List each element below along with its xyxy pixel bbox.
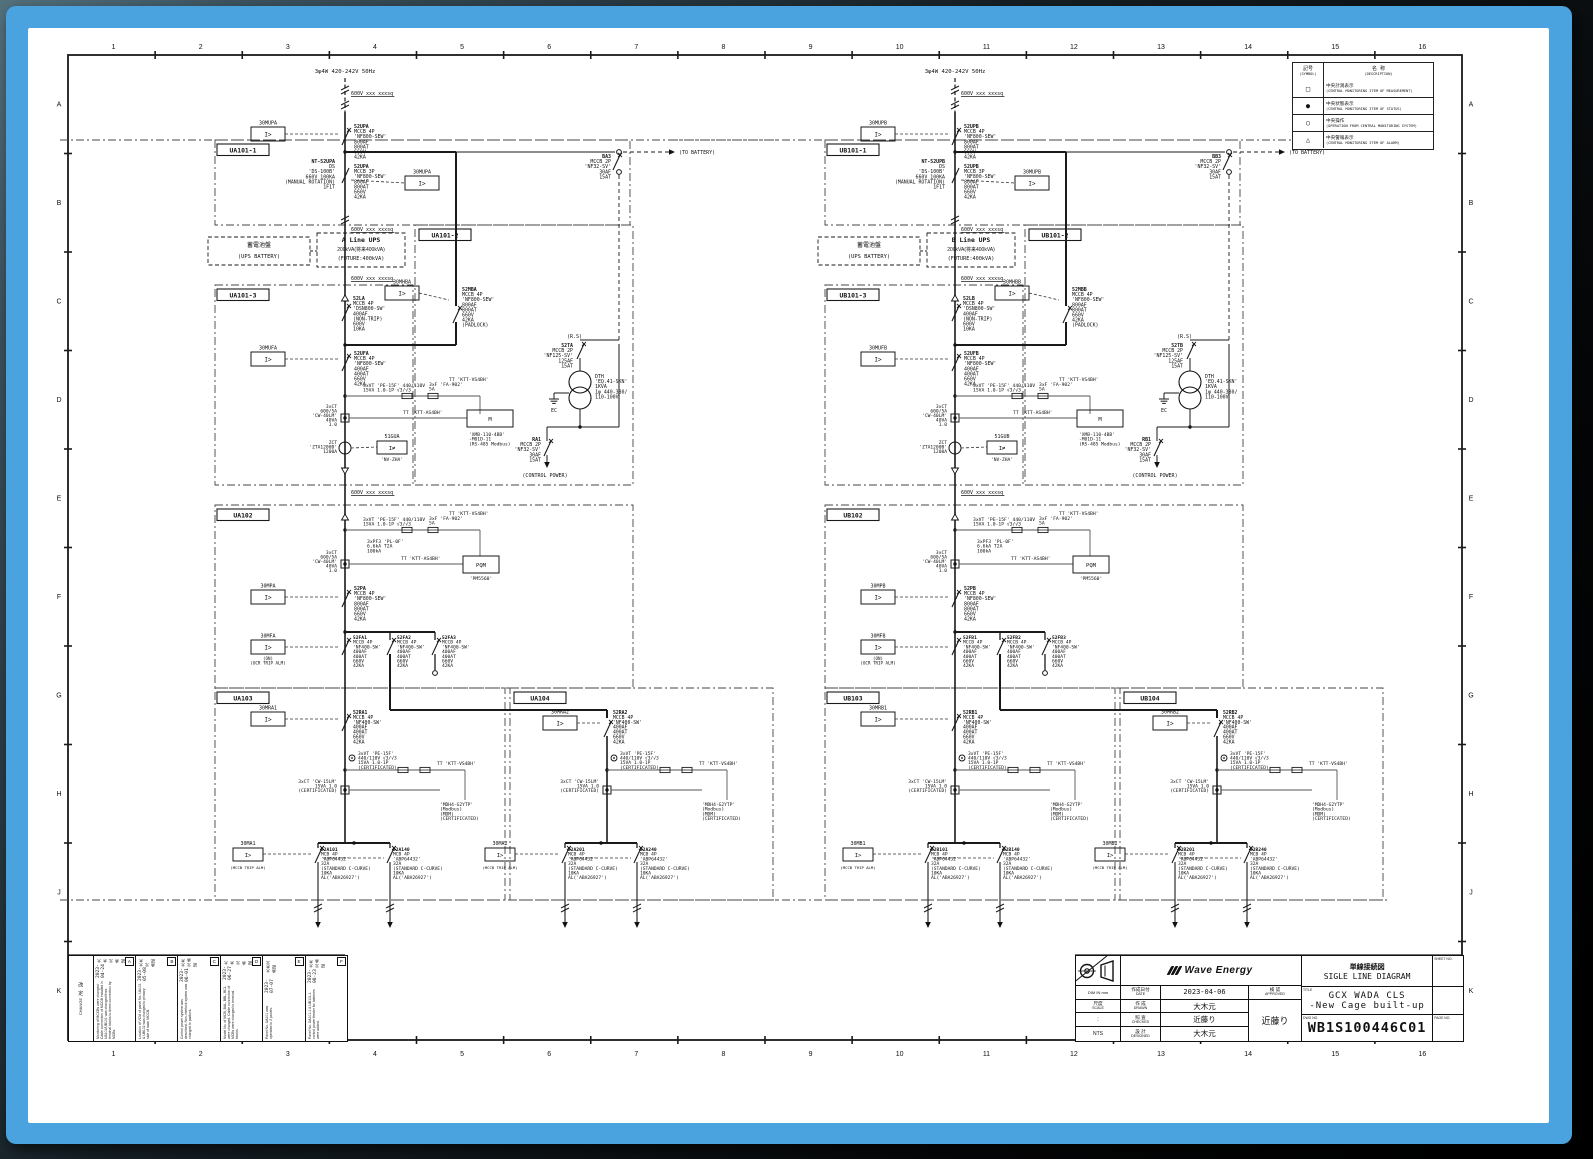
sheet-no-value-cell bbox=[1433, 987, 1464, 1014]
revision-item-F: FPanel No. UA101-1 & UB101-1 control pow… bbox=[306, 956, 347, 1041]
svg-text:6: 6 bbox=[547, 44, 551, 51]
svg-text:UB101-1: UB101-1 bbox=[840, 147, 867, 155]
svg-text:30MRA1: 30MRA1 bbox=[259, 706, 277, 712]
legend-description: 中央警報表示(CENTRAL MONITORING ITEM OF ALARM) bbox=[1324, 132, 1433, 148]
svg-text:I>: I> bbox=[874, 357, 882, 364]
svg-text:I>: I> bbox=[264, 132, 272, 139]
svg-text:I>: I> bbox=[855, 853, 862, 859]
svg-text:UA104: UA104 bbox=[530, 695, 549, 703]
designed-value: 大木元 bbox=[1193, 1028, 1216, 1039]
svg-text:1.0: 1.0 bbox=[939, 568, 948, 574]
legend-description: 中央状態表示(CENTRAL MONITORING ITEM OF STATUS… bbox=[1324, 98, 1433, 114]
svg-text:1200A: 1200A bbox=[323, 449, 337, 455]
svg-text:UB103: UB103 bbox=[843, 695, 862, 703]
svg-text:42KA: 42KA bbox=[964, 155, 976, 161]
svg-text:10KA: 10KA bbox=[353, 327, 365, 333]
drawn-label: 作 成DRAWN bbox=[1134, 1002, 1147, 1010]
svg-text:EC: EC bbox=[1161, 408, 1167, 414]
svg-text:600V xxx xxxsq: 600V xxx xxxsq bbox=[351, 91, 393, 97]
svg-text:'NV-ZHA': 'NV-ZHA' bbox=[381, 457, 403, 463]
svg-text:42KA: 42KA bbox=[442, 663, 453, 669]
svg-text:12: 12 bbox=[1070, 44, 1078, 51]
svg-text:H: H bbox=[56, 791, 61, 798]
revision-tag: B bbox=[167, 957, 176, 966]
wave-logo-icon bbox=[1169, 966, 1180, 975]
svg-text:11: 11 bbox=[983, 44, 990, 51]
doc-type-en: SIGLE LINE DIAGRAM bbox=[1324, 972, 1411, 981]
revision-tag: E bbox=[295, 957, 304, 966]
svg-text:PQM: PQM bbox=[1086, 563, 1097, 569]
svg-text:30MB2: 30MB2 bbox=[1102, 841, 1117, 847]
title-block-right: 単線接続図 SIGLE LINE DIAGRAM SHEET NO. TITLE… bbox=[1302, 956, 1464, 1041]
svg-text:(PADLOCK): (PADLOCK) bbox=[1072, 323, 1099, 329]
svg-text:3φ4W 420-242V 50Hz: 3φ4W 420-242V 50Hz bbox=[315, 69, 376, 75]
svg-text:I>: I> bbox=[1166, 721, 1174, 728]
svg-text:1F1T: 1F1T bbox=[933, 185, 945, 191]
svg-text:30MUPA: 30MUPA bbox=[259, 121, 277, 127]
legend-header-row: 記号 (SYMBOL) 名 称 (DESCRIPTION) bbox=[1293, 63, 1433, 80]
page-no-cell: PAGE NO. bbox=[1433, 1015, 1464, 1041]
svg-text:TT 'KTT-AS4BH': TT 'KTT-AS4BH' bbox=[401, 556, 441, 562]
svg-text:42KA: 42KA bbox=[354, 617, 366, 623]
svg-text:1200A: 1200A bbox=[933, 449, 947, 455]
svg-text:42KA: 42KA bbox=[963, 663, 974, 669]
legend-row-1: ●中央状態表示(CENTRAL MONITORING ITEM OF STATU… bbox=[1293, 97, 1433, 114]
svg-text:I>: I> bbox=[556, 721, 564, 728]
doc-type-jp: 単線接続図 bbox=[1350, 962, 1385, 972]
svg-text:110-100V: 110-100V bbox=[1205, 394, 1229, 400]
svg-text:15AT: 15AT bbox=[599, 174, 611, 180]
svg-text:TT 'KTT-VS4BH': TT 'KTT-VS4BH' bbox=[699, 761, 738, 767]
svg-text:(MCCB TRIP ALM): (MCCB TRIP ALM) bbox=[230, 865, 265, 870]
svg-text:I>: I> bbox=[1008, 291, 1016, 298]
svg-text:4: 4 bbox=[373, 1051, 377, 1058]
svg-text:15AT: 15AT bbox=[529, 457, 541, 463]
drawing-sheet: 1122334455667788991010111112121313141415… bbox=[28, 28, 1549, 1123]
svg-text:(FUTURE:400kVA): (FUTURE:400kVA) bbox=[948, 256, 995, 262]
drawing-title-line1: GCX WADA CLS bbox=[1329, 991, 1406, 1001]
svg-text:100kA: 100kA bbox=[367, 548, 381, 554]
svg-text:42KA: 42KA bbox=[354, 195, 366, 201]
svg-text:200kVA(将来400kVA): 200kVA(将来400kVA) bbox=[947, 246, 995, 253]
svg-text:UB101-2: UB101-2 bbox=[1042, 232, 1069, 240]
svg-text:42KA: 42KA bbox=[963, 739, 975, 745]
revision-item-D: DModel No. of MCB, BAL, BBL, BCL were ch… bbox=[221, 956, 263, 1041]
svg-text:(CERTIFICATED): (CERTIFICATED) bbox=[560, 788, 599, 794]
svg-text:16: 16 bbox=[1418, 1051, 1426, 1058]
svg-text:TT 'KTT-VS4BH': TT 'KTT-VS4BH' bbox=[449, 511, 489, 517]
revision-item-B: BLocation of VCM of panel No. UA101 & UB… bbox=[136, 956, 178, 1041]
revision-body: Location of VCM of panel No. UA101 & UB1… bbox=[137, 957, 176, 1040]
svg-text:I>: I> bbox=[245, 853, 252, 859]
drawing-title-cell: TITLE GCX WADA CLS -New Cage built-up bbox=[1302, 987, 1433, 1014]
svg-text:30MUFA: 30MUFA bbox=[259, 346, 277, 352]
legend-description: 中央計測表示(CENTRAL MONITORING ITEM OF MEASUR… bbox=[1324, 80, 1433, 97]
svg-text:AL('ABA26927'): AL('ABA26927') bbox=[640, 875, 679, 881]
svg-text:H: H bbox=[1468, 791, 1473, 798]
svg-text:I≠: I≠ bbox=[389, 446, 396, 452]
svg-text:15AT: 15AT bbox=[1139, 457, 1151, 463]
svg-text:1.0: 1.0 bbox=[329, 568, 338, 574]
svg-text:30MRB2: 30MRB2 bbox=[1161, 710, 1179, 716]
svg-text:TT 'KTT-VS4BH': TT 'KTT-VS4BH' bbox=[1059, 511, 1099, 517]
revision-body: Model No. of MCB, BAL, BBL, BCL were cha… bbox=[222, 957, 261, 1040]
company-logo-text: Wave Energy bbox=[1184, 965, 1252, 976]
svg-text:30MUPB: 30MUPB bbox=[1023, 170, 1041, 176]
svg-text:I>: I> bbox=[1028, 181, 1036, 188]
svg-text:TT 'KTT-VS4BH': TT 'KTT-VS4BH' bbox=[449, 377, 489, 383]
svg-text:9: 9 bbox=[809, 44, 813, 51]
svg-text:15VA 1.0-1P √3/√3: 15VA 1.0-1P √3/√3 bbox=[363, 388, 411, 394]
svg-text:5: 5 bbox=[460, 1051, 464, 1058]
svg-text:2: 2 bbox=[199, 1051, 203, 1058]
legend-description: 中央操作(OPERATION FROM CENTRAL MONITORING S… bbox=[1324, 115, 1433, 131]
legend-symbol: ○ bbox=[1293, 115, 1324, 131]
revision-tag: D bbox=[252, 957, 261, 966]
svg-text:(UPS BATTERY): (UPS BATTERY) bbox=[848, 254, 890, 260]
revision-header: 改 定 CHANGE bbox=[69, 956, 94, 1041]
svg-text:42KA: 42KA bbox=[1007, 663, 1018, 669]
svg-text:30MRB1: 30MRB1 bbox=[869, 706, 887, 712]
svg-text:蓄電池盤: 蓄電池盤 bbox=[857, 241, 881, 249]
approved-value: 近藤り bbox=[1261, 1014, 1288, 1027]
svg-text:13: 13 bbox=[1157, 44, 1165, 51]
svg-text:4: 4 bbox=[373, 44, 377, 51]
third-angle-projection-icon bbox=[1076, 956, 1121, 986]
svg-text:B: B bbox=[57, 200, 62, 207]
svg-text:14: 14 bbox=[1244, 44, 1252, 51]
svg-text:(OCR TRIP ALM): (OCR TRIP ALM) bbox=[250, 661, 285, 666]
svg-text:15VA 1.0-1P √3/√3: 15VA 1.0-1P √3/√3 bbox=[973, 388, 1021, 394]
svg-text:D: D bbox=[56, 397, 61, 404]
svg-text:I>: I> bbox=[874, 645, 882, 652]
svg-text:9: 9 bbox=[809, 1051, 813, 1058]
screenshot-root: { "grid": { "cols": ["1","2","3","4","5"… bbox=[0, 0, 1593, 1159]
date-value: 2023-04-06 bbox=[1183, 988, 1225, 996]
sheet-frame: 1122334455667788991010111112121313141415… bbox=[56, 44, 1473, 1058]
svg-text:(FUTURE:400kVA): (FUTURE:400kVA) bbox=[338, 256, 385, 262]
revision-item-A: AMonitoring of MCCBs were changed. Cable… bbox=[94, 956, 136, 1041]
svg-text:13: 13 bbox=[1157, 1051, 1165, 1058]
drawing-title-line2: -New Cage built-up bbox=[1309, 1001, 1425, 1011]
svg-text:J: J bbox=[57, 889, 61, 896]
svg-text:30MRA2: 30MRA2 bbox=[551, 710, 569, 716]
dim-label: DIM IN mm bbox=[1088, 990, 1108, 995]
svg-text:(TO BATTERY): (TO BATTERY) bbox=[1289, 150, 1325, 156]
company-logo: Wave Energy bbox=[1121, 956, 1301, 986]
revision-tag: F bbox=[337, 957, 346, 966]
svg-text:UA103: UA103 bbox=[233, 695, 252, 703]
approved-label: 検 認APPROVED bbox=[1265, 988, 1285, 996]
revision-item-E: EPanel No. UA101 was operated to 2 panel… bbox=[263, 956, 305, 1041]
legend-row-3: △中央警報表示(CENTRAL MONITORING ITEM OF ALARM… bbox=[1293, 131, 1433, 148]
legend-symbol: ● bbox=[1293, 98, 1324, 114]
revision-item-C: CControl power system was described. Non… bbox=[178, 956, 220, 1041]
svg-text:I≠: I≠ bbox=[999, 446, 1006, 452]
legend-rows: □中央計測表示(CENTRAL MONITORING ITEM OF MEASU… bbox=[1293, 80, 1433, 148]
svg-text:15VA 1.0-1P √3/√3: 15VA 1.0-1P √3/√3 bbox=[973, 522, 1021, 528]
svg-text:AL('ABA26927'): AL('ABA26927') bbox=[393, 875, 432, 881]
doc-type-cell: 単線接続図 SIGLE LINE DIAGRAM bbox=[1302, 956, 1433, 986]
svg-text:5A: 5A bbox=[1039, 387, 1045, 393]
svg-text:E: E bbox=[57, 495, 62, 502]
circuit-half-A: UA101-1UA101-2UA101-3UA102UA103UA1043φ4W… bbox=[28, 28, 778, 928]
checked-value: 近藤り bbox=[1193, 1014, 1216, 1025]
svg-text:5A: 5A bbox=[1039, 521, 1045, 527]
svg-text:G: G bbox=[56, 692, 61, 699]
revision-body: Monitoring of MCCBs were changed. Cable … bbox=[95, 957, 134, 1040]
svg-text:AL('ABA26927'): AL('ABA26927') bbox=[1003, 875, 1042, 881]
svg-text:(MCCB TRIP ALM): (MCCB TRIP ALM) bbox=[1092, 865, 1127, 870]
svg-text:30MUPA: 30MUPA bbox=[413, 170, 431, 176]
svg-text:42KA: 42KA bbox=[964, 617, 976, 623]
revision-tag: A bbox=[125, 957, 134, 966]
svg-text:30MFB: 30MFB bbox=[870, 634, 885, 640]
svg-text:6: 6 bbox=[547, 1051, 551, 1058]
designed-label: 設 計DESIGNED bbox=[1131, 1030, 1150, 1038]
svg-text:(CERTIFICATED): (CERTIFICATED) bbox=[298, 788, 337, 794]
svg-text:30MA2: 30MA2 bbox=[492, 841, 507, 847]
svg-text:M: M bbox=[488, 417, 492, 423]
svg-text:UB104: UB104 bbox=[1140, 695, 1159, 703]
scale-label: 尺度SCALE bbox=[1092, 1002, 1104, 1010]
svg-text:30MPA: 30MPA bbox=[260, 584, 275, 590]
svg-text:1F1T: 1F1T bbox=[323, 185, 335, 191]
svg-text:42KA: 42KA bbox=[397, 663, 408, 669]
svg-text:7: 7 bbox=[634, 1051, 638, 1058]
svg-text:'NV-ZHA': 'NV-ZHA' bbox=[991, 457, 1013, 463]
svg-text:(R.S): (R.S) bbox=[567, 334, 582, 340]
legend-symbol: □ bbox=[1293, 80, 1324, 97]
svg-text:3: 3 bbox=[286, 44, 290, 51]
svg-text:I>: I> bbox=[398, 291, 406, 298]
svg-text:(TO BATTERY): (TO BATTERY) bbox=[679, 150, 715, 156]
svg-text:'PM5560': 'PM5560' bbox=[1080, 576, 1103, 582]
svg-text:I>: I> bbox=[1107, 853, 1114, 859]
svg-text:30MA1: 30MA1 bbox=[240, 841, 255, 847]
svg-text:51GUB: 51GUB bbox=[994, 434, 1009, 440]
svg-text:AL('ABA26927'): AL('ABA26927') bbox=[321, 875, 360, 881]
svg-text:(OCR TRIP ALM): (OCR TRIP ALM) bbox=[860, 661, 895, 666]
title-block-left: Wave Energy DIM IN mm 作成日付DATE 2023-04-0… bbox=[1076, 956, 1302, 1041]
date-label: 作成日付DATE bbox=[1131, 988, 1149, 996]
svg-text:600V xxx xxxsq: 600V xxx xxxsq bbox=[961, 490, 1003, 496]
svg-text:PQM: PQM bbox=[476, 563, 487, 569]
svg-text:C: C bbox=[1468, 298, 1473, 305]
revision-body: Panel No. UA101 was operated to 2 panels… bbox=[264, 957, 303, 1040]
legend-row-0: □中央計測表示(CENTRAL MONITORING ITEM OF MEASU… bbox=[1293, 80, 1433, 97]
svg-text:15AT: 15AT bbox=[1171, 363, 1183, 369]
svg-text:UA101-2: UA101-2 bbox=[432, 232, 459, 240]
svg-text:TT 'KTT-VS4BH': TT 'KTT-VS4BH' bbox=[1047, 761, 1086, 767]
svg-text:42KA: 42KA bbox=[964, 195, 976, 201]
dwg-no-value: WB1S100446C01 bbox=[1308, 1020, 1427, 1036]
svg-text:I>: I> bbox=[874, 132, 882, 139]
svg-text:(MCCB TRIP ALM): (MCCB TRIP ALM) bbox=[482, 865, 517, 870]
svg-text:TT 'KTT-AS4BH': TT 'KTT-AS4BH' bbox=[1013, 410, 1053, 416]
svg-text:I>: I> bbox=[264, 717, 272, 724]
checked-label: 照 査CHECKED bbox=[1132, 1016, 1150, 1024]
svg-text:12: 12 bbox=[1070, 1051, 1078, 1058]
svg-text:15AT: 15AT bbox=[1209, 174, 1221, 180]
svg-text:15: 15 bbox=[1331, 1051, 1339, 1058]
svg-text:42KA: 42KA bbox=[1223, 739, 1235, 745]
svg-text:AL('ABA26927'): AL('ABA26927') bbox=[1178, 875, 1217, 881]
svg-text:30MB1: 30MB1 bbox=[850, 841, 865, 847]
svg-text:UA101-3: UA101-3 bbox=[230, 292, 257, 300]
svg-text:10KA: 10KA bbox=[963, 327, 975, 333]
revision-tag: C bbox=[210, 957, 219, 966]
svg-text:(RS-485 Modbus): (RS-485 Modbus) bbox=[1079, 441, 1121, 447]
svg-text:(CERTIFICATED): (CERTIFICATED) bbox=[908, 788, 947, 794]
svg-text:UA102: UA102 bbox=[233, 512, 252, 520]
svg-text:(MCCB TRIP ALM): (MCCB TRIP ALM) bbox=[840, 865, 875, 870]
svg-text:TT 'KTT-VS4BH': TT 'KTT-VS4BH' bbox=[1309, 761, 1348, 767]
revision-history-strip: 改 定 CHANGE AMonitoring of MCCBs were cha… bbox=[68, 955, 348, 1042]
svg-text:42KA: 42KA bbox=[354, 155, 366, 161]
legend-row-2: ○中央操作(OPERATION FROM CENTRAL MONITORING … bbox=[1293, 114, 1433, 131]
svg-text:5: 5 bbox=[460, 44, 464, 51]
svg-text:30MHBB: 30MHBB bbox=[1003, 280, 1021, 286]
svg-text:600V xxx xxxsq: 600V xxx xxxsq bbox=[961, 227, 1003, 233]
svg-text:(R.S): (R.S) bbox=[1177, 334, 1192, 340]
svg-text:600V xxx xxxsq: 600V xxx xxxsq bbox=[351, 227, 393, 233]
svg-text:TT 'KTT-AS4BH': TT 'KTT-AS4BH' bbox=[403, 410, 443, 416]
svg-text:F: F bbox=[57, 594, 61, 601]
svg-text:42KA: 42KA bbox=[613, 739, 625, 745]
svg-text:15: 15 bbox=[1331, 44, 1339, 51]
circuit-half-B: UB101-1UB101-2UB101-3UB102UB103UB1043φ4W… bbox=[28, 28, 1388, 928]
svg-text:(CERTIFICATED): (CERTIFICATED) bbox=[1170, 788, 1209, 794]
svg-text:(CONTROL POWER): (CONTROL POWER) bbox=[522, 473, 567, 479]
svg-text:G: G bbox=[1468, 692, 1473, 699]
svg-text:100kA: 100kA bbox=[977, 548, 991, 554]
svg-text:D: D bbox=[1468, 397, 1473, 404]
svg-text:C: C bbox=[56, 298, 61, 305]
svg-text:600V xxx xxxsq: 600V xxx xxxsq bbox=[961, 276, 1003, 282]
svg-text:8: 8 bbox=[721, 44, 725, 51]
svg-text:UB102: UB102 bbox=[843, 512, 862, 520]
svg-text:42KA: 42KA bbox=[353, 663, 364, 669]
svg-text:F: F bbox=[1469, 594, 1473, 601]
svg-text:'PM5560': 'PM5560' bbox=[470, 576, 493, 582]
svg-text:11: 11 bbox=[983, 1051, 990, 1058]
svg-text:AL('ABA26927'): AL('ABA26927') bbox=[1250, 875, 1289, 881]
svg-text:(CERTIFICATED): (CERTIFICATED) bbox=[702, 816, 741, 822]
svg-text:30MFA: 30MFA bbox=[260, 634, 275, 640]
svg-text:30MHBA: 30MHBA bbox=[393, 280, 411, 286]
legend-symbol-header-en: (SYMBOL) bbox=[1299, 72, 1316, 76]
scale-value: NTS bbox=[1093, 1031, 1103, 1037]
revision-body: Control power system was described. Non-… bbox=[179, 957, 218, 1040]
legend-symbol: △ bbox=[1293, 132, 1324, 148]
svg-text:(CONTROL POWER): (CONTROL POWER) bbox=[1132, 473, 1177, 479]
legend-desc-header: 名 称 (DESCRIPTION) bbox=[1324, 63, 1433, 80]
svg-text:(RS-485 Modbus): (RS-485 Modbus) bbox=[469, 441, 511, 447]
svg-text:K: K bbox=[1469, 988, 1474, 995]
svg-text:(CERTIFICATED): (CERTIFICATED) bbox=[440, 816, 479, 822]
svg-text:TT 'KTT-VS4BH': TT 'KTT-VS4BH' bbox=[437, 761, 476, 767]
svg-text:14: 14 bbox=[1244, 1051, 1252, 1058]
legend-desc-header-en: (DESCRIPTION) bbox=[1326, 72, 1431, 76]
svg-text:51GUA: 51GUA bbox=[384, 434, 399, 440]
svg-text:600V xxx xxxsq: 600V xxx xxxsq bbox=[351, 276, 393, 282]
svg-text:42KA: 42KA bbox=[1052, 663, 1063, 669]
svg-text:1: 1 bbox=[112, 44, 116, 51]
svg-text:I>: I> bbox=[264, 645, 272, 652]
svg-text:UA101-1: UA101-1 bbox=[230, 147, 257, 155]
title-block: Wave Energy DIM IN mm 作成日付DATE 2023-04-0… bbox=[1075, 955, 1464, 1042]
svg-text:42KA: 42KA bbox=[353, 739, 365, 745]
svg-text:5A: 5A bbox=[429, 387, 435, 393]
svg-text:E: E bbox=[1469, 495, 1474, 502]
svg-text:(CERTIFICATED): (CERTIFICATED) bbox=[1312, 816, 1351, 822]
svg-text:I>: I> bbox=[874, 717, 882, 724]
svg-text:10: 10 bbox=[896, 1051, 904, 1058]
svg-text:1.0: 1.0 bbox=[939, 422, 948, 428]
svg-text:M: M bbox=[1098, 417, 1102, 423]
svg-text:15VA 1.0-1P √3/√3: 15VA 1.0-1P √3/√3 bbox=[363, 522, 411, 528]
svg-text:I>: I> bbox=[418, 181, 426, 188]
svg-text:3: 3 bbox=[286, 1051, 290, 1058]
svg-text:1.0: 1.0 bbox=[329, 422, 338, 428]
svg-text:TT 'KTT-AS4BH': TT 'KTT-AS4BH' bbox=[1011, 556, 1051, 562]
dwg-no-cell: DWG NO. WB1S100446C01 bbox=[1302, 1015, 1433, 1041]
svg-text:I>: I> bbox=[497, 853, 504, 859]
svg-text:600V xxx xxxsq: 600V xxx xxxsq bbox=[351, 490, 393, 496]
svg-text:1: 1 bbox=[112, 1051, 116, 1058]
svg-text:(PADLOCK): (PADLOCK) bbox=[462, 323, 489, 329]
svg-text:(CERTIFICATED): (CERTIFICATED) bbox=[1050, 816, 1089, 822]
svg-text:30MUFB: 30MUFB bbox=[869, 346, 887, 352]
svg-text:8: 8 bbox=[721, 1051, 725, 1058]
svg-text:30MPB: 30MPB bbox=[870, 584, 885, 590]
svg-text:EC: EC bbox=[551, 408, 557, 414]
svg-text:10: 10 bbox=[896, 44, 904, 51]
svg-text:A Line UPS: A Line UPS bbox=[342, 236, 381, 244]
svg-text:J: J bbox=[1469, 889, 1473, 896]
svg-text:A: A bbox=[1469, 101, 1474, 108]
svg-text:B Line UPS: B Line UPS bbox=[952, 236, 991, 244]
svg-text:UB101-3: UB101-3 bbox=[840, 292, 867, 300]
legend-symbol-header: 記号 (SYMBOL) bbox=[1293, 63, 1324, 80]
svg-text:7: 7 bbox=[634, 44, 638, 51]
svg-text:15AT: 15AT bbox=[561, 363, 573, 369]
svg-text:5A: 5A bbox=[429, 521, 435, 527]
svg-text:I>: I> bbox=[874, 595, 882, 602]
svg-text:3φ4W 420-242V 50Hz: 3φ4W 420-242V 50Hz bbox=[925, 69, 986, 75]
sheet-no-cell: SHEET NO. bbox=[1433, 956, 1464, 986]
svg-text:B: B bbox=[1469, 200, 1474, 207]
svg-text:16: 16 bbox=[1418, 44, 1426, 51]
svg-text:30MUPB: 30MUPB bbox=[869, 121, 887, 127]
svg-text:K: K bbox=[57, 988, 62, 995]
scale-colon: : bbox=[1097, 1017, 1099, 1023]
svg-text:2: 2 bbox=[199, 44, 203, 51]
svg-text:TT 'KTT-VS4BH': TT 'KTT-VS4BH' bbox=[1059, 377, 1099, 383]
svg-text:200kVA(将来400kVA): 200kVA(将来400kVA) bbox=[337, 246, 385, 253]
svg-text:AL('ABA26927'): AL('ABA26927') bbox=[931, 875, 970, 881]
drawn-value: 大木元 bbox=[1193, 1001, 1216, 1012]
svg-text:I>: I> bbox=[264, 595, 272, 602]
svg-text:I>: I> bbox=[264, 357, 272, 364]
revision-body: Panel No. UA101-1 & UB101-1 control powe… bbox=[307, 957, 346, 1040]
svg-text:110-100V: 110-100V bbox=[595, 394, 619, 400]
svg-text:600V xxx xxxsq: 600V xxx xxxsq bbox=[961, 91, 1003, 97]
svg-text:蓄電池盤: 蓄電池盤 bbox=[247, 241, 271, 249]
svg-text:(UPS BATTERY): (UPS BATTERY) bbox=[238, 254, 280, 260]
svg-text:AL('ABA26927'): AL('ABA26927') bbox=[568, 875, 607, 881]
